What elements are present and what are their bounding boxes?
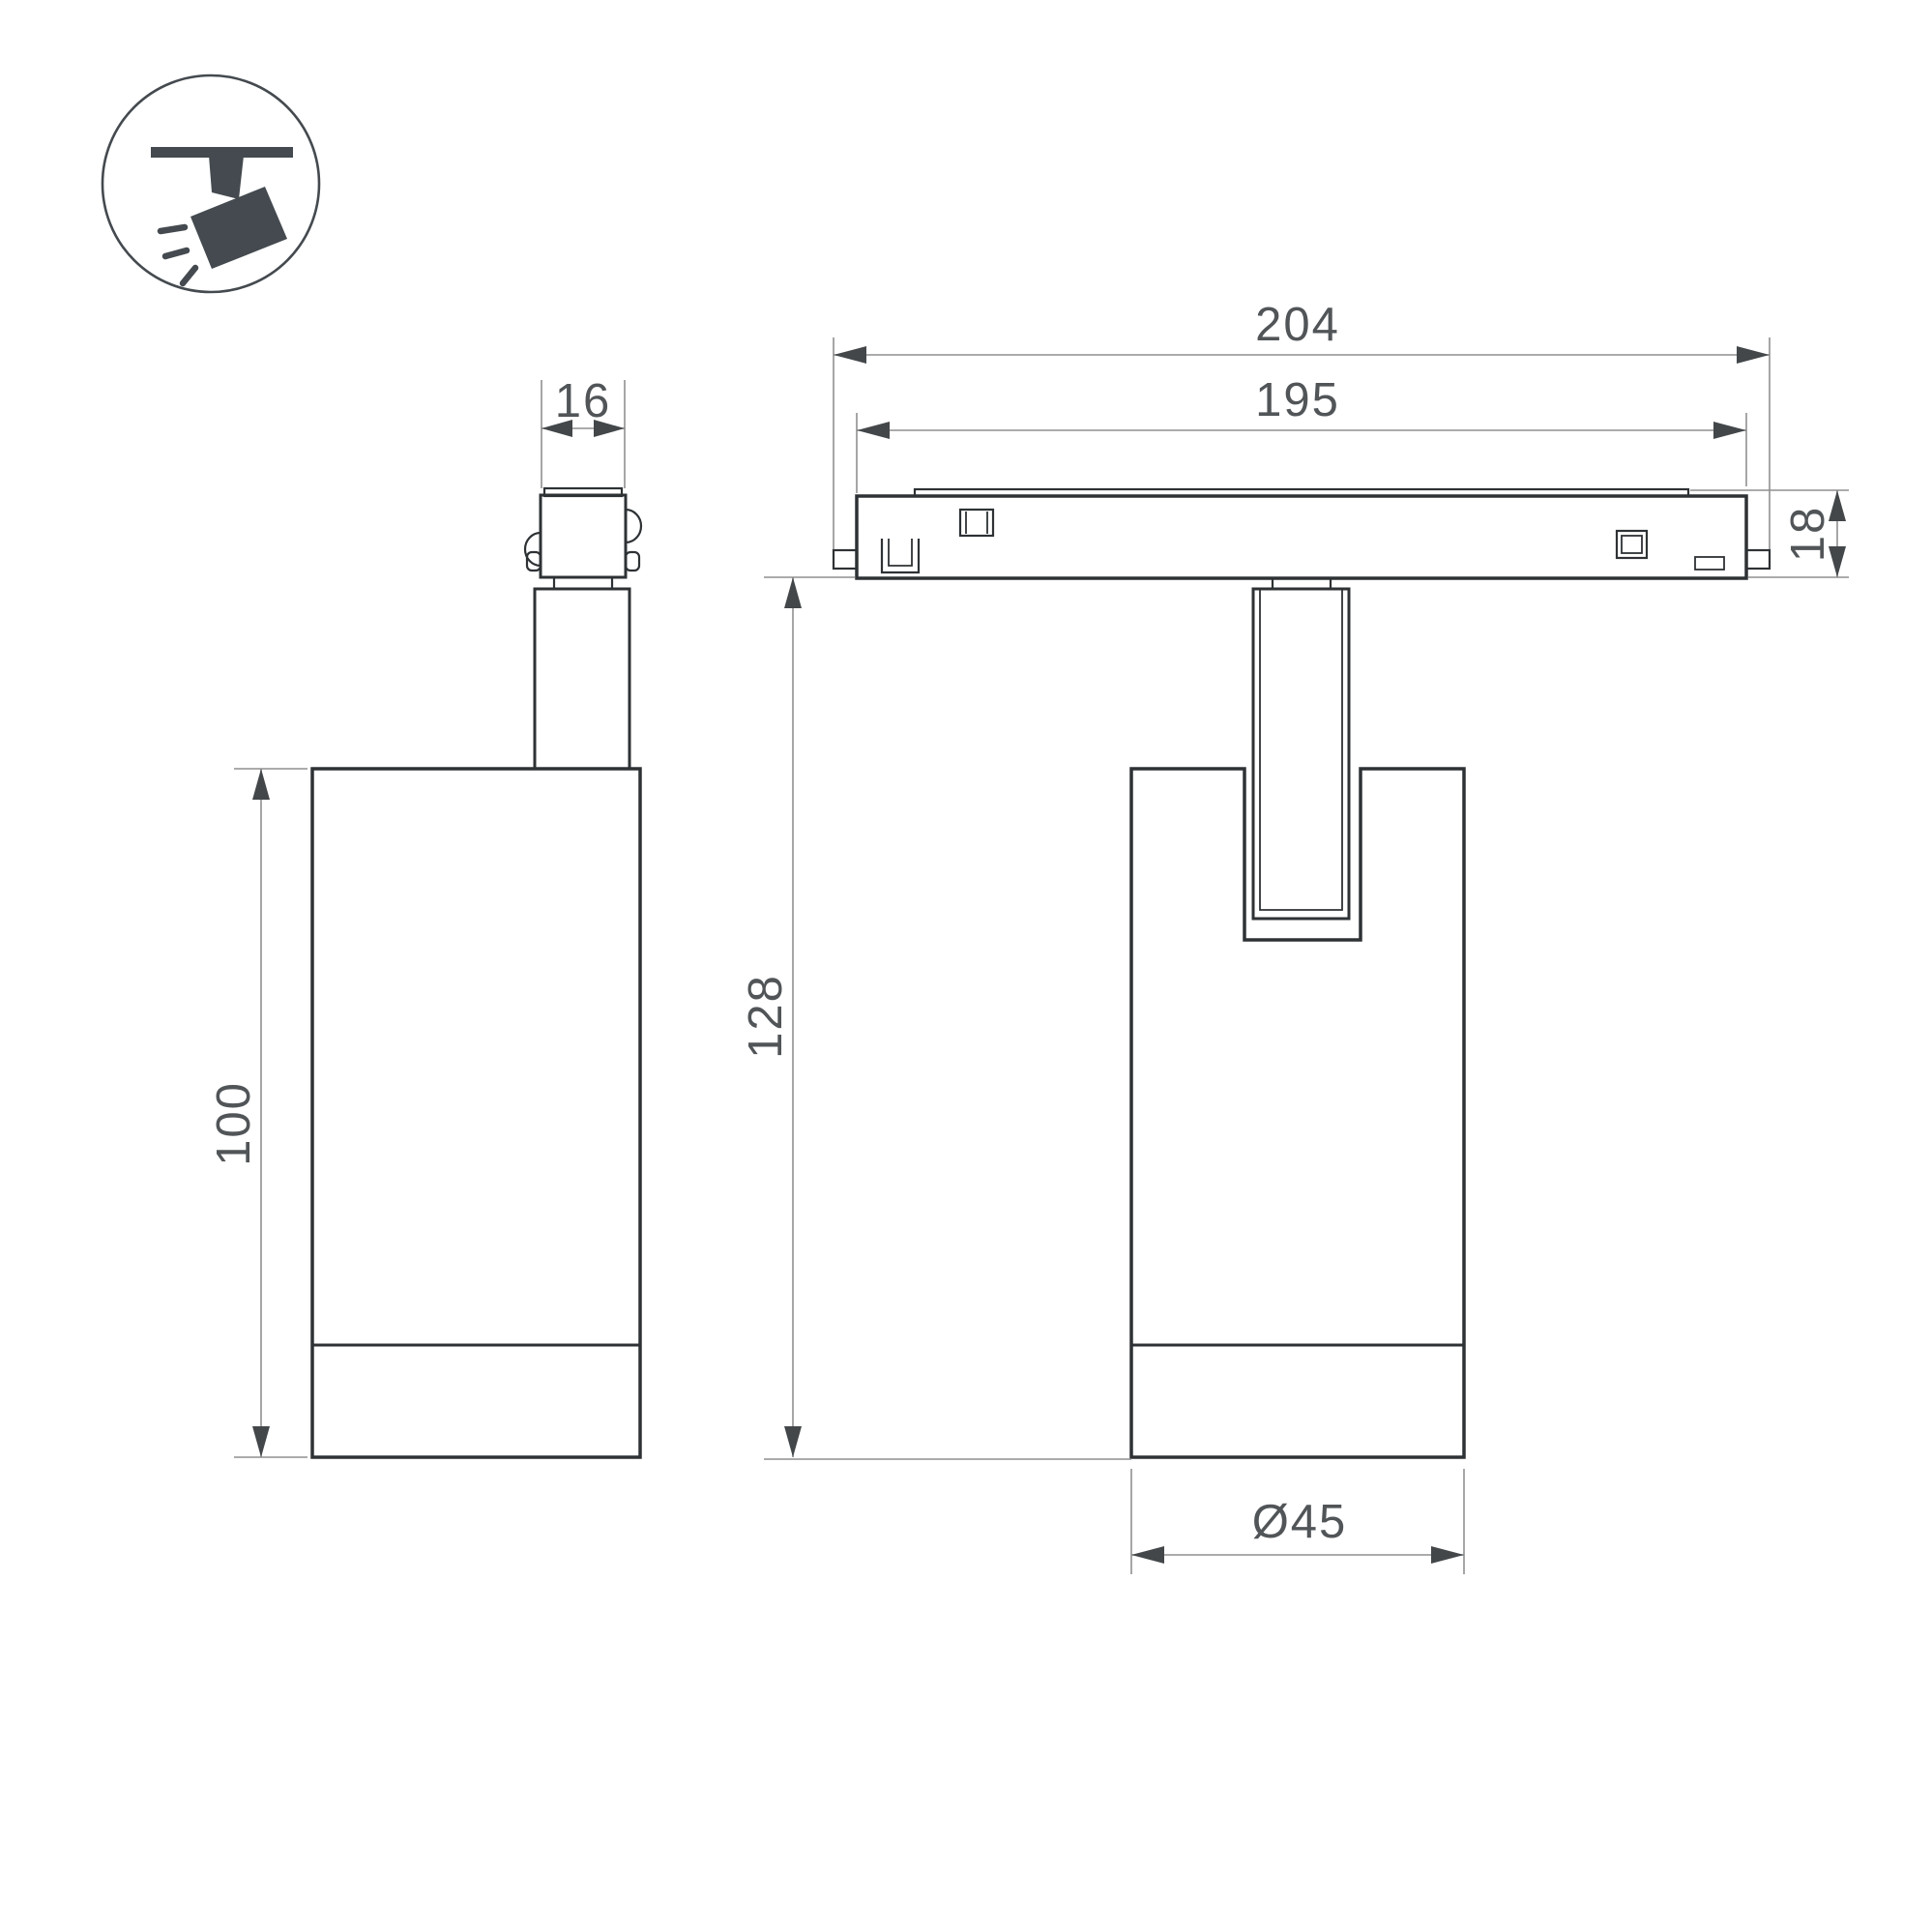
adapter-box — [541, 495, 626, 577]
dimension-label: 100 — [208, 1081, 260, 1166]
dimension-label: 16 — [555, 375, 612, 427]
lamp-body-side — [312, 769, 640, 1457]
track-u-clip-inner — [889, 539, 912, 566]
track-clip-small — [1695, 557, 1724, 570]
icon-mount-stem — [209, 156, 244, 199]
arrow-left-icon — [1131, 1546, 1164, 1564]
track-spotlight-icon — [102, 75, 319, 292]
arrow-down-icon — [252, 1426, 270, 1457]
arrow-up-icon — [784, 577, 802, 608]
side-view — [312, 488, 641, 1457]
dimension-label: 18 — [1782, 506, 1834, 563]
arrow-left-icon — [834, 346, 866, 364]
dimension-label: Ø45 — [1252, 1496, 1348, 1548]
stem-front-inner — [1260, 589, 1342, 910]
adapter-ear-right — [626, 510, 641, 542]
stem-front — [1253, 589, 1349, 919]
dimension-adapter-width: 16 — [542, 375, 625, 488]
track-u-clip-outer — [882, 539, 919, 572]
dimension-body-diameter: Ø45 — [1131, 1469, 1464, 1574]
track-end-tab-right — [1746, 550, 1770, 569]
dimension-body-height: 100 — [208, 769, 307, 1457]
front-view — [834, 489, 1770, 1457]
icon-light-ray — [183, 268, 195, 283]
adapter-stub-right — [626, 552, 639, 571]
technical-drawing: 16 100 — [0, 0, 1932, 1932]
dimension-label: 204 — [1255, 299, 1340, 351]
arrow-right-icon — [1737, 346, 1770, 364]
arrow-right-icon — [1431, 1546, 1464, 1564]
arrow-left-icon — [857, 422, 890, 439]
arrow-up-icon — [252, 769, 270, 800]
track-clip-right-inner — [1622, 536, 1642, 553]
icon-lamp-body — [190, 187, 287, 269]
track-profile — [857, 496, 1746, 578]
stem-side — [535, 589, 629, 769]
icon-light-ray — [161, 227, 185, 231]
track-end-tab-left — [834, 550, 857, 569]
icon-light-ray — [165, 250, 187, 256]
dimension-overall-height: 128 — [740, 577, 1131, 1459]
arrow-down-icon — [784, 1426, 802, 1457]
drawing-canvas: 16 100 — [0, 0, 1932, 1932]
dimension-track-inner: 195 — [857, 374, 1746, 493]
lamp-body-front — [1131, 769, 1464, 1457]
dimension-label: 128 — [740, 974, 792, 1059]
dimension-label: 195 — [1255, 374, 1340, 426]
arrow-right-icon — [1713, 422, 1746, 439]
